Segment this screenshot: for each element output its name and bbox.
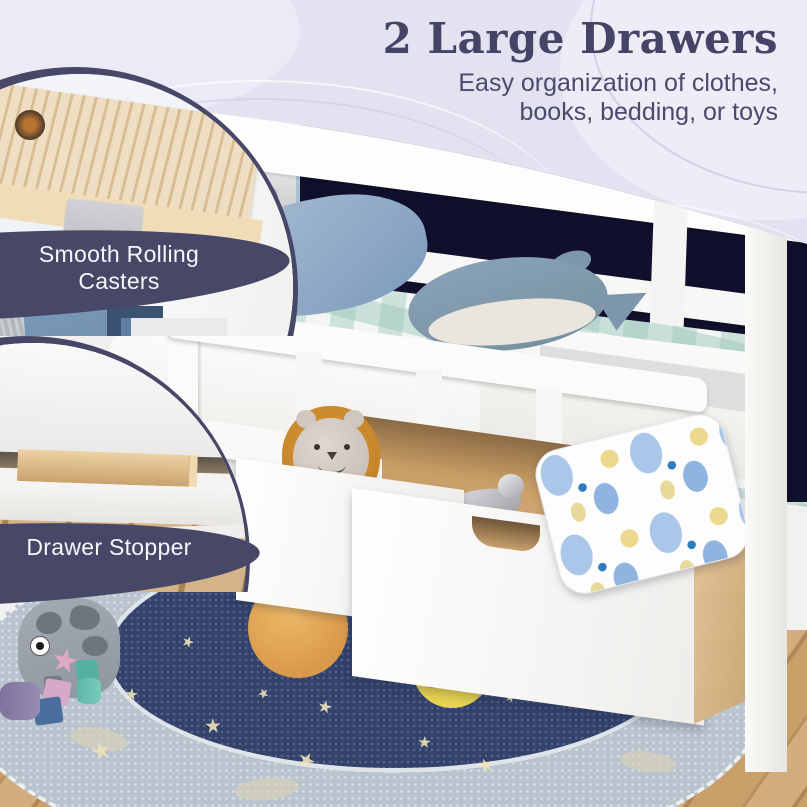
headline-block: 2 Large Drawers Easy organization of clo… [383, 16, 778, 126]
toy-elephant-pupil [36, 642, 44, 650]
silver-bird-toy-head [498, 474, 524, 498]
casters-label: Smooth Rolling Casters [0, 241, 238, 295]
bed-leg-post-right [745, 212, 787, 772]
lion-plush-eye [314, 444, 320, 450]
toy-block-teal-cylinder [77, 678, 101, 704]
stopper-label: Drawer Stopper [0, 534, 218, 561]
lion-plush-eye [344, 444, 350, 450]
headline-subtitle: Easy organization of clothes,books, bedd… [383, 69, 778, 126]
stopper-drawer-white-panel [0, 343, 246, 463]
headline-title: 2 Large Drawers [383, 16, 778, 62]
caster-screw-hole [15, 110, 45, 140]
product-feature-graphic: 2 Large Drawers Easy organization of clo… [0, 0, 807, 807]
toy-block-purple-cylinder [0, 682, 40, 720]
navy-panel-sliver [787, 252, 807, 502]
toy-elephant-hole [82, 636, 108, 656]
caster-wall-piece [121, 318, 227, 336]
stopper-wood-block [17, 449, 198, 487]
